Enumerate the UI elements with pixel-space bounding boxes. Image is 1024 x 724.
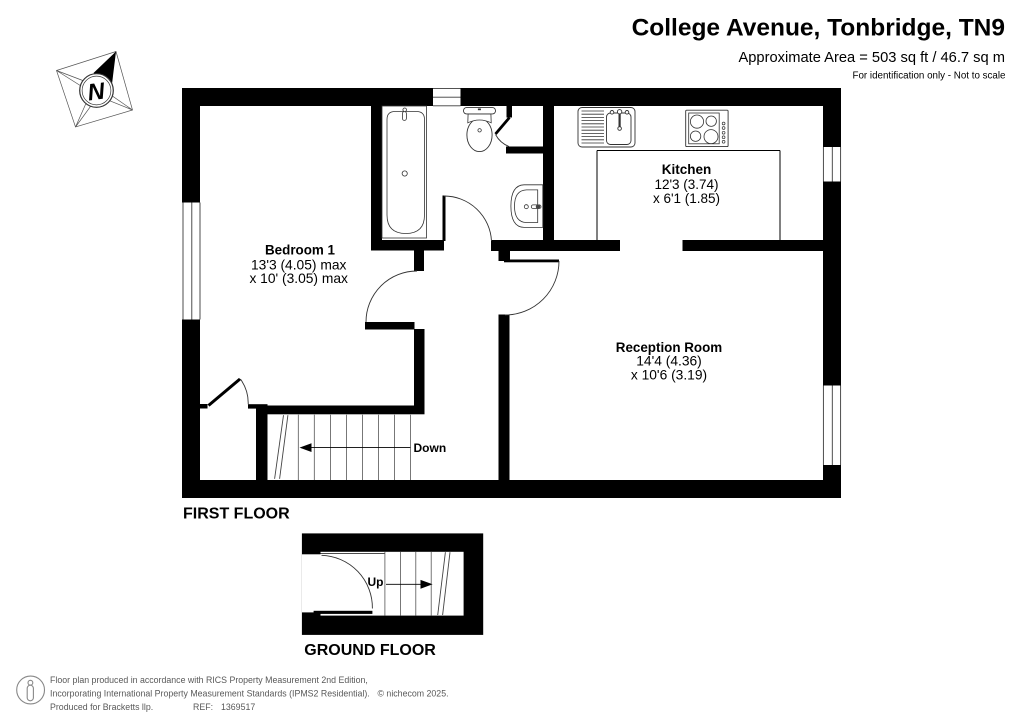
svg-text:x 6'1 (1.85): x 6'1 (1.85) bbox=[653, 191, 720, 206]
svg-text:Kitchen: Kitchen bbox=[662, 162, 712, 177]
svg-text:14'4 (4.36): 14'4 (4.36) bbox=[636, 353, 702, 368]
svg-text:Produced for Bracketts llp.REF: Produced for Bracketts llp.REF:1369517 bbox=[50, 702, 255, 712]
svg-text:Floor plan produced in accorda: Floor plan produced in accordance with R… bbox=[50, 675, 368, 685]
svg-text:Down: Down bbox=[414, 441, 447, 455]
svg-text:x 10' (3.05) max: x 10' (3.05) max bbox=[249, 271, 348, 286]
svg-text:FIRST FLOOR: FIRST FLOOR bbox=[183, 506, 290, 523]
svg-text:12'3 (3.74): 12'3 (3.74) bbox=[654, 177, 718, 192]
svg-text:x 10'6 (3.19): x 10'6 (3.19) bbox=[631, 367, 707, 382]
svg-text:Up: Up bbox=[368, 575, 384, 589]
svg-text:Approximate Area = 503 sq ft /: Approximate Area = 503 sq ft / 46.7 sq m bbox=[738, 50, 1005, 66]
svg-text:College Avenue, Tonbridge, TN9: College Avenue, Tonbridge, TN9 bbox=[632, 15, 1005, 42]
svg-text:For identification only - Not: For identification only - Not to scale bbox=[852, 71, 1006, 82]
svg-text:GROUND FLOOR: GROUND FLOOR bbox=[304, 642, 436, 659]
svg-text:Incorporating International Pr: Incorporating International Property Mea… bbox=[50, 689, 449, 699]
svg-text:Bedroom 1: Bedroom 1 bbox=[265, 242, 335, 257]
